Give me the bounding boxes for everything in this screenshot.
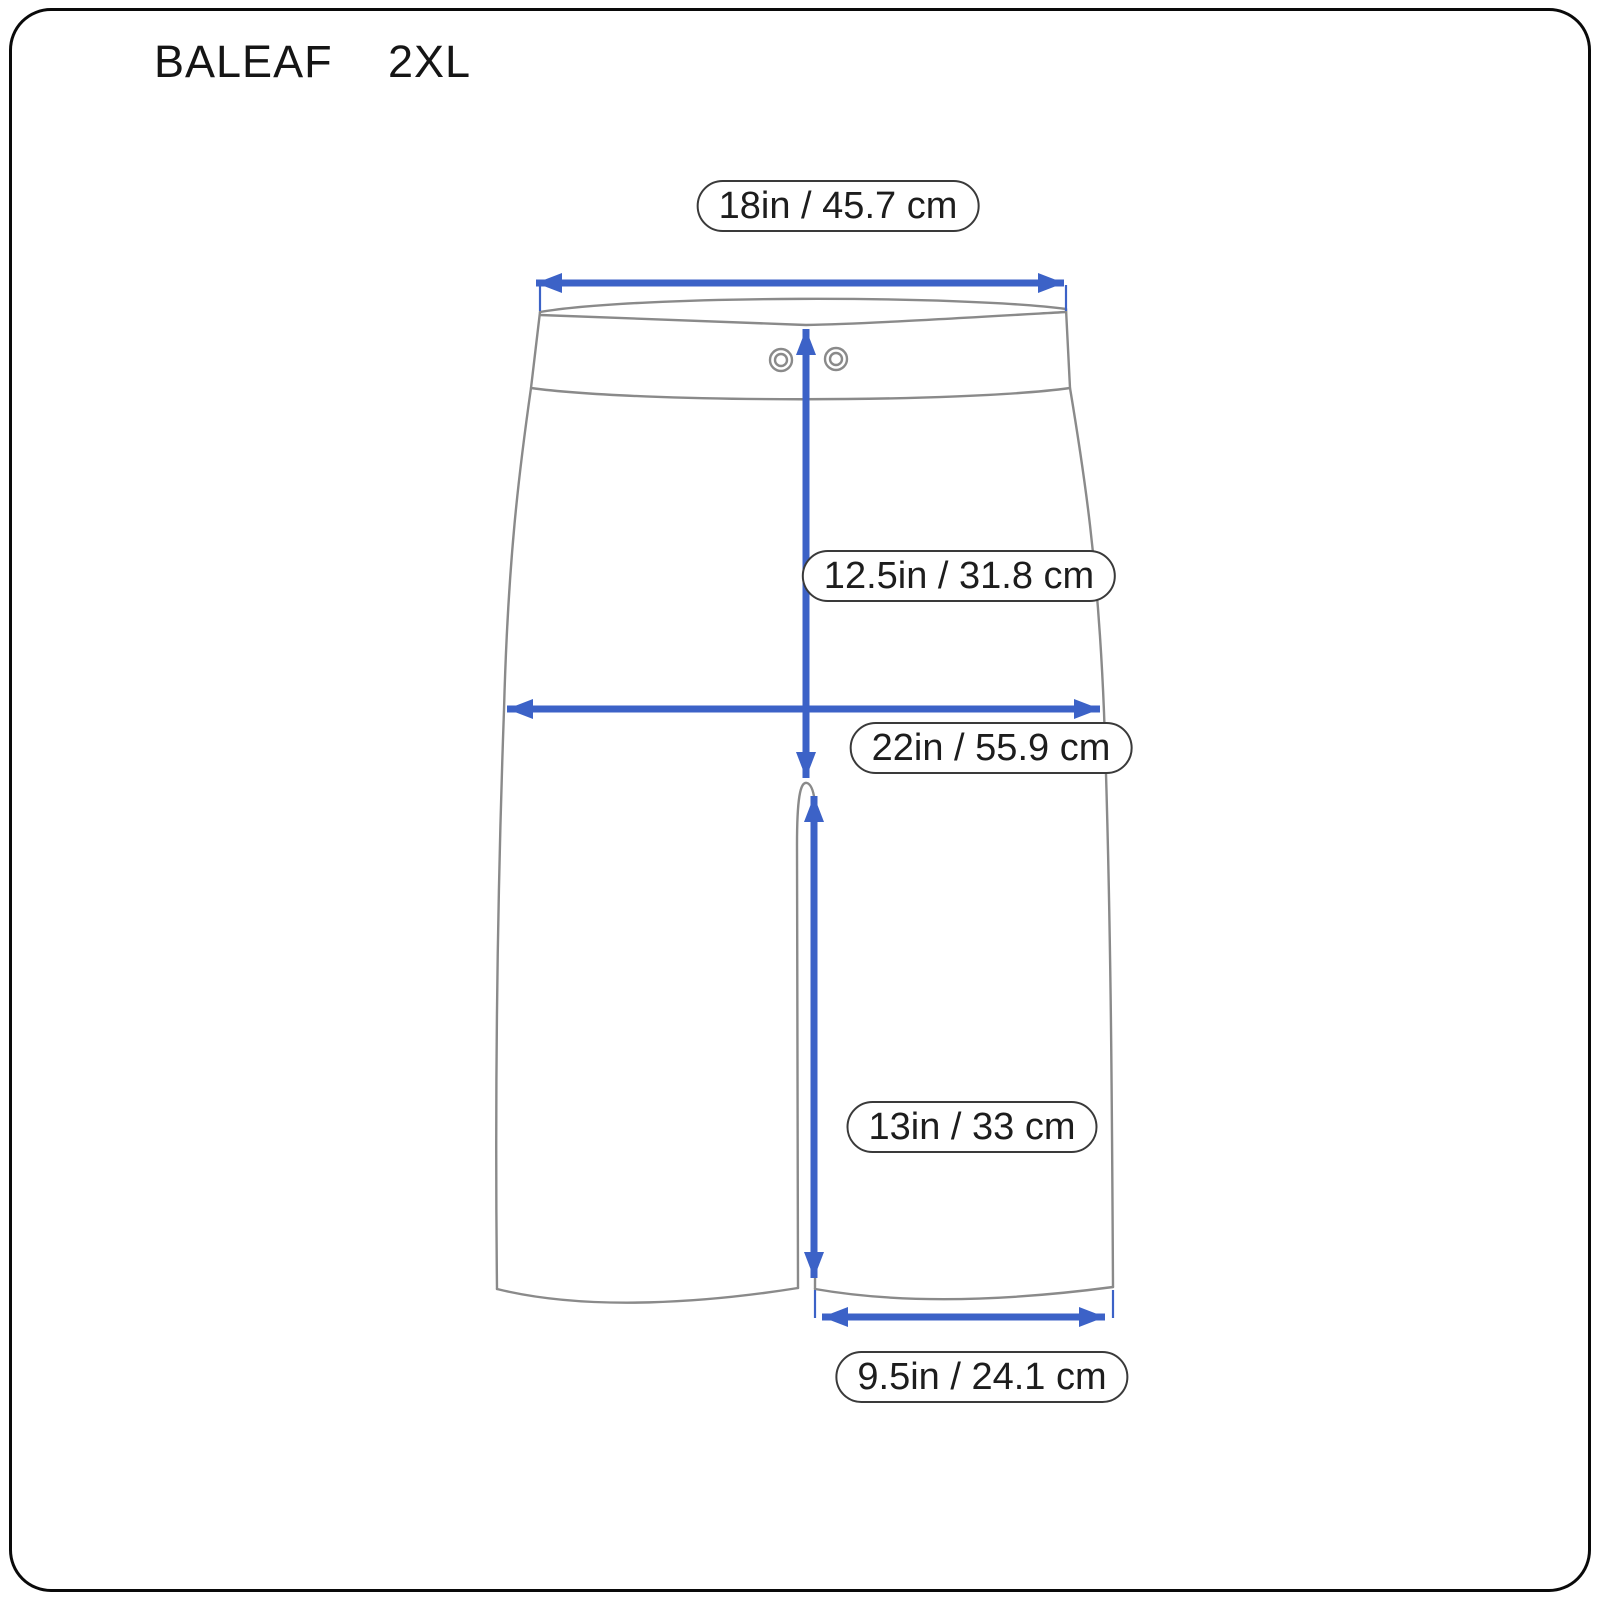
measurement-arrows — [507, 283, 1113, 1318]
left-leg-hem — [497, 1288, 798, 1303]
measurement-label-front-rise: 12.5in / 31.8 cm — [802, 550, 1116, 602]
size-diagram-canvas: BALEAF 2XL — [0, 0, 1600, 1600]
measurement-label-inseam: 13in / 33 cm — [847, 1101, 1098, 1153]
measurement-label-leg-opening: 9.5in / 24.1 cm — [835, 1351, 1128, 1403]
left-side-seam — [496, 312, 540, 1289]
measurement-label-waist: 18in / 45.7 cm — [697, 180, 980, 232]
waist-inner-edge — [540, 312, 1066, 325]
right-leg-hem — [815, 1287, 1113, 1299]
waist-top-edge — [540, 299, 1066, 312]
left-eyelet-inner — [775, 354, 787, 366]
right-eyelet-inner — [830, 353, 842, 365]
waistband-bottom-seam — [531, 388, 1070, 399]
measurement-label-hip: 22in / 55.9 cm — [850, 722, 1133, 774]
shorts-technical-drawing — [0, 0, 1600, 1600]
extension-ticks — [540, 285, 1113, 1318]
